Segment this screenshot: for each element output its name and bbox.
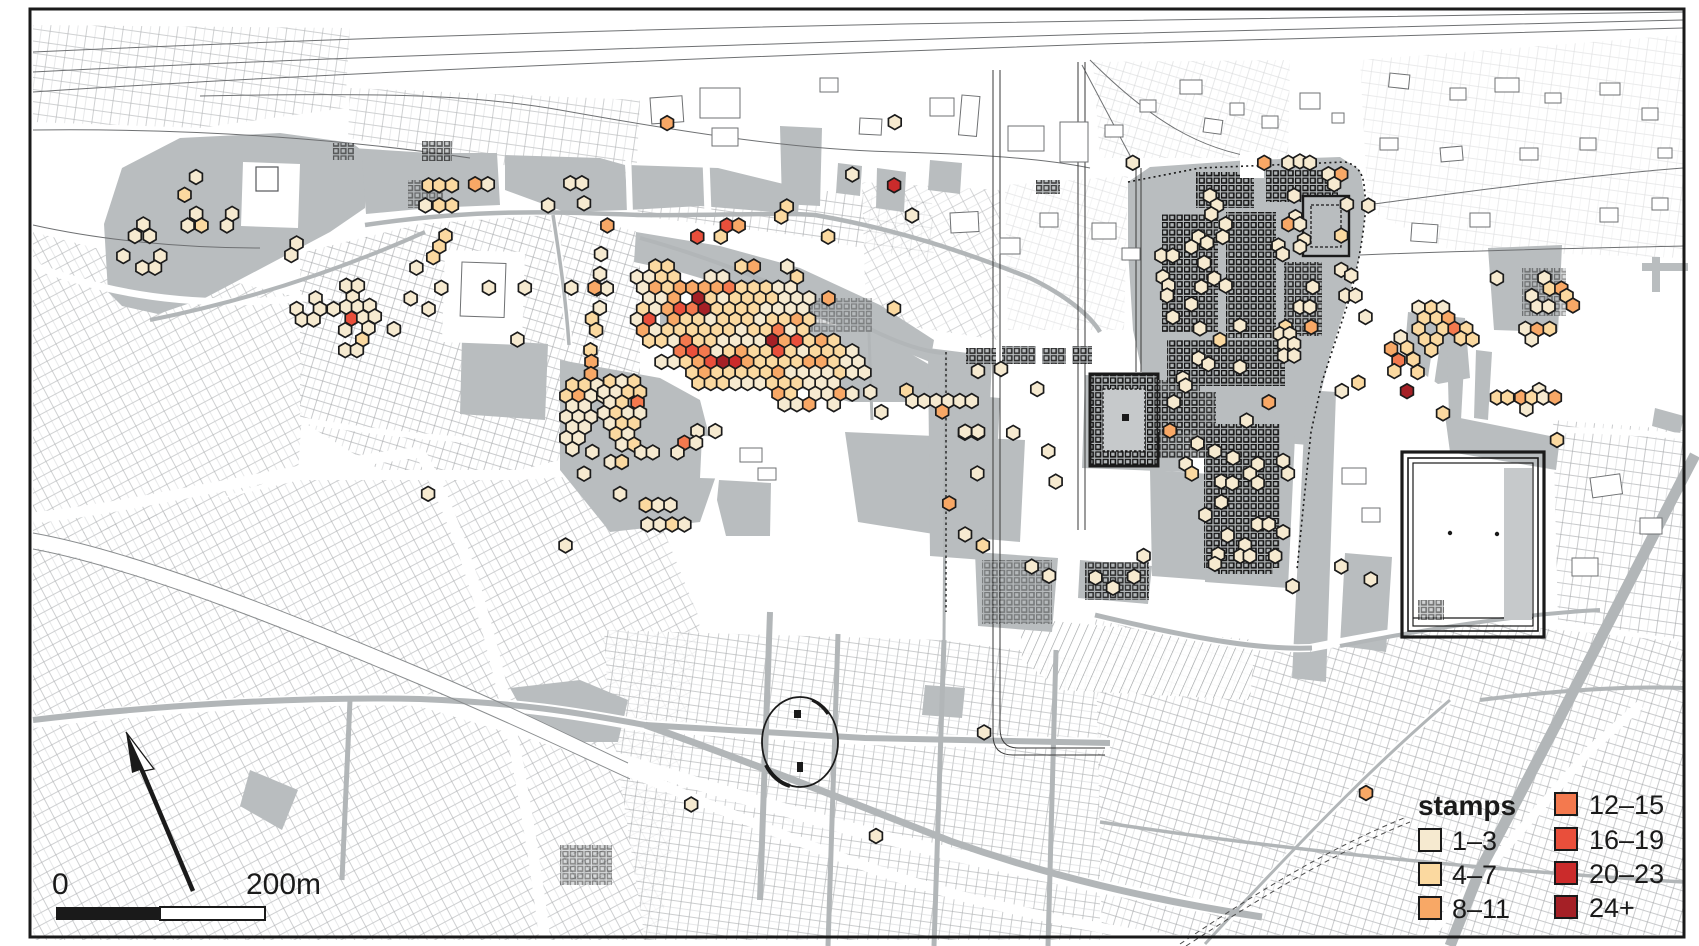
svg-text:8–11: 8–11	[1452, 894, 1510, 924]
svg-text:24+: 24+	[1589, 893, 1635, 923]
svg-text:16–19: 16–19	[1589, 825, 1664, 855]
svg-text:1–3: 1–3	[1452, 826, 1497, 856]
svg-text:0: 0	[52, 868, 69, 901]
svg-text:4–7: 4–7	[1452, 860, 1497, 890]
svg-text:20–23: 20–23	[1589, 859, 1664, 889]
svg-text:stamps: stamps	[1418, 790, 1516, 821]
svg-text:200m: 200m	[246, 868, 321, 901]
svg-text:12–15: 12–15	[1589, 790, 1664, 820]
